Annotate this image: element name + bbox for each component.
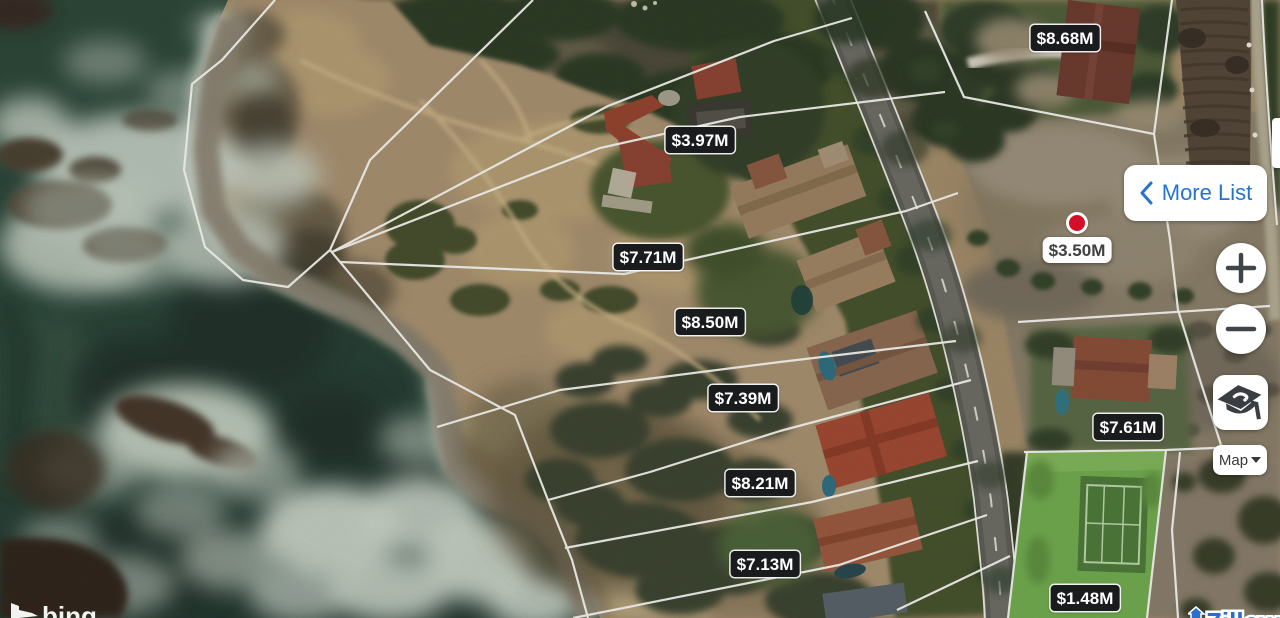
- svg-text:Zillow: Zillow: [1206, 607, 1280, 618]
- svg-text:bing: bing: [42, 602, 97, 618]
